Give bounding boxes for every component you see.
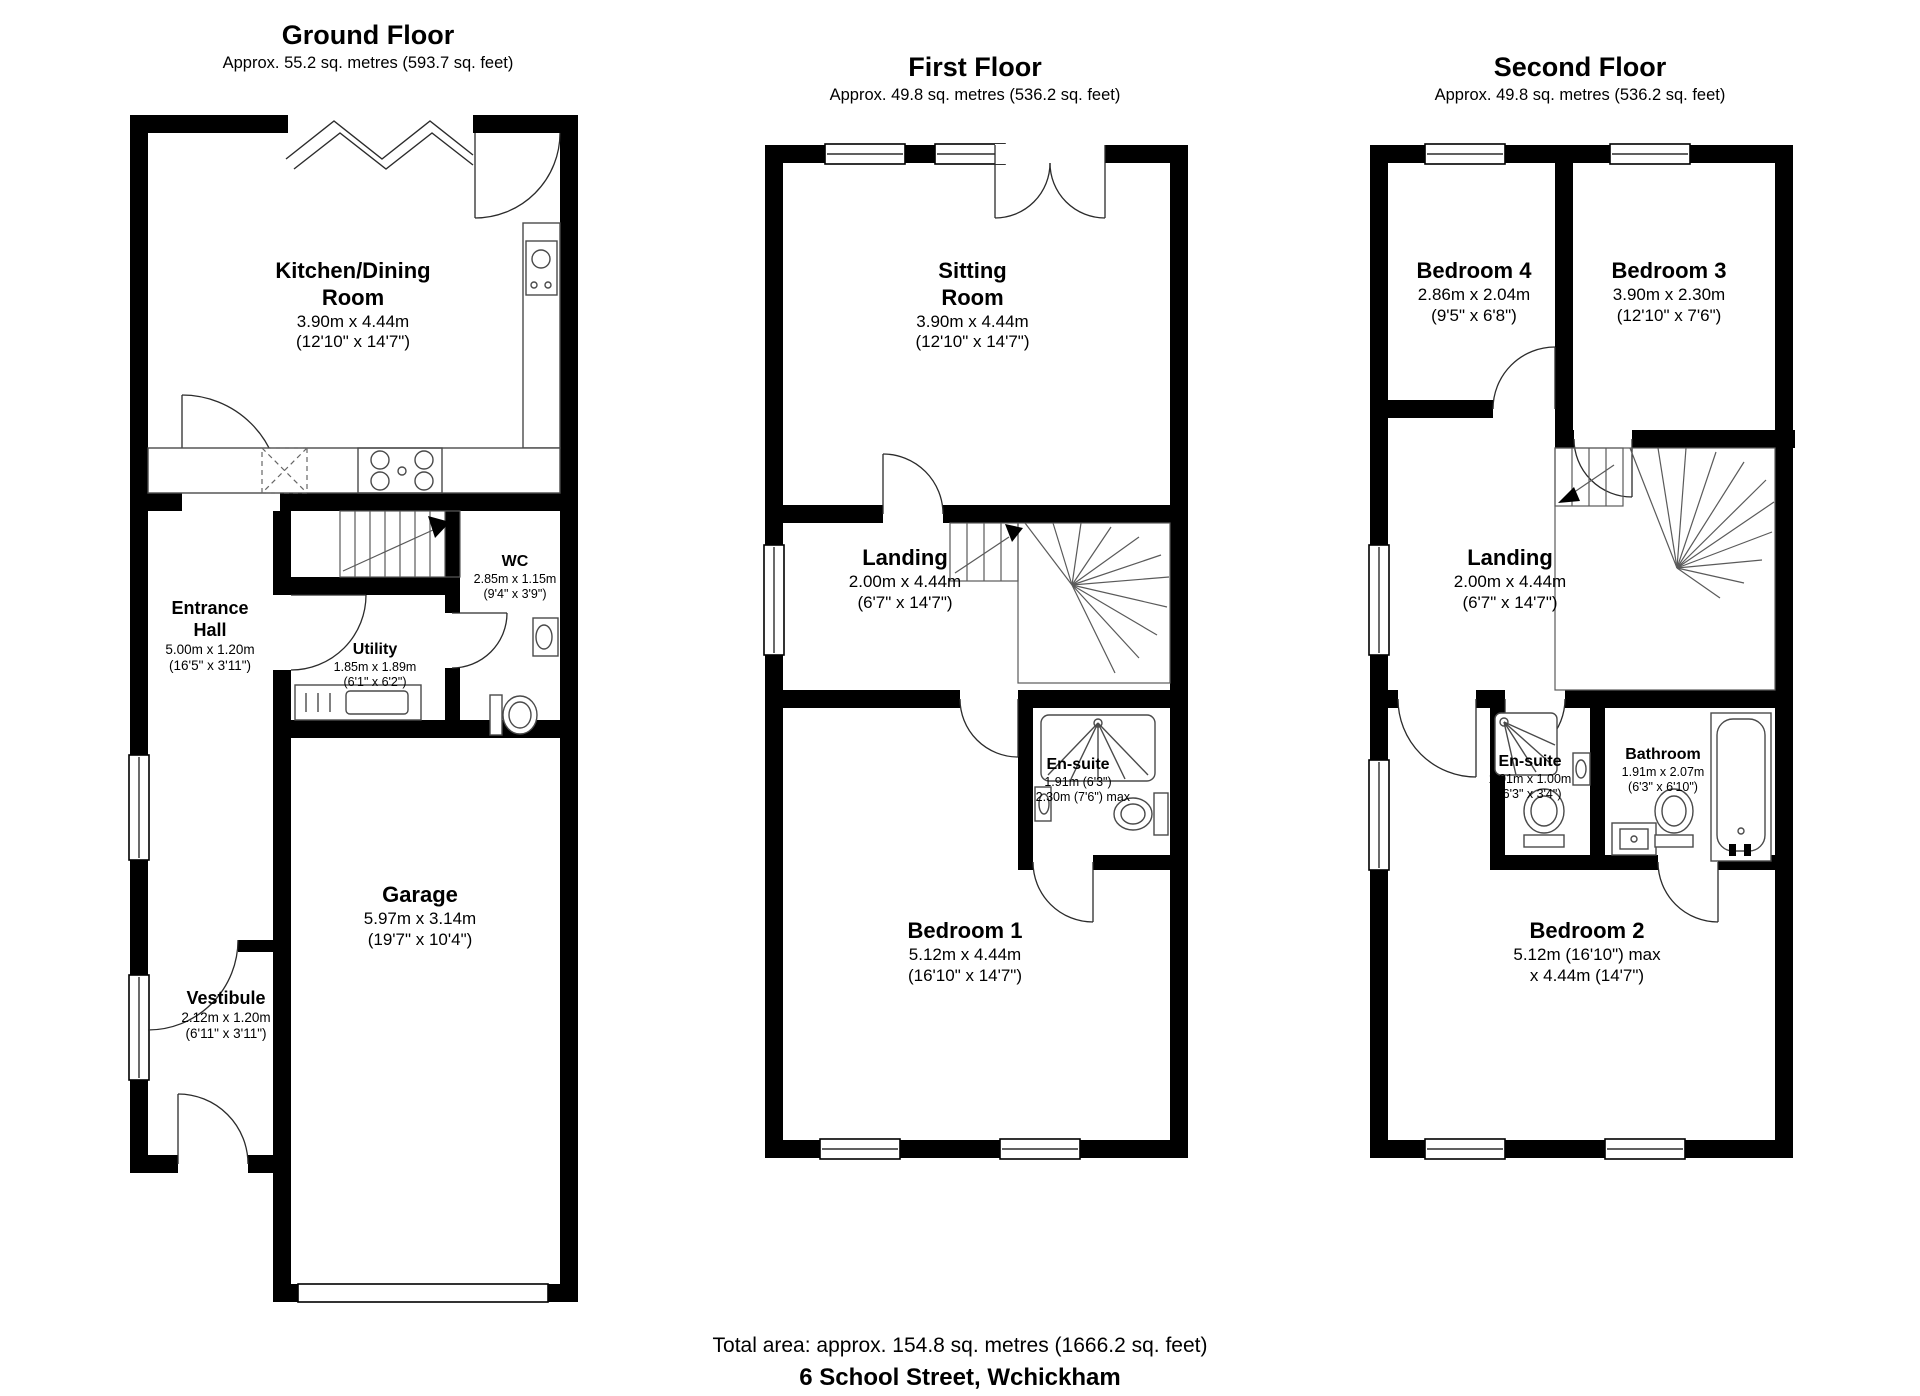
second-floor-header: Second Floor Approx. 49.8 sq. metres (53… <box>1380 52 1780 105</box>
room-name: Bathroom <box>1597 745 1729 765</box>
room-dims-metric: 5.12m (16'10") max <box>1462 945 1712 966</box>
room-name: Garage <box>300 882 540 909</box>
room-dims-metric: 2.85m x 1.15m <box>455 572 575 587</box>
room-label-bedroom-3: Bedroom 3 3.90m x 2.30m (12'10" x 7'6") <box>1580 258 1758 326</box>
room-name: Sitting Room <box>910 258 1035 312</box>
room-name: En-suite <box>1475 752 1585 772</box>
room-dims-imperial: x 4.44m (14'7") <box>1462 966 1712 987</box>
room-dims-metric: 1.91m x 1.00m <box>1475 772 1585 787</box>
room-label-bedroom-1: Bedroom 1 5.12m x 4.44m (16'10" x 14'7") <box>845 918 1085 986</box>
room-name: En-suite <box>1013 755 1143 775</box>
wc-toilet-icon <box>490 695 537 735</box>
room-dims-imperial: (6'7" x 14'7") <box>795 593 1015 614</box>
room-dims-metric: 5.00m x 1.20m <box>162 642 258 658</box>
first-floor-header: First Floor Approx. 49.8 sq. metres (536… <box>775 52 1175 105</box>
room-label-first-ensuite: En-suite 1.91m (6'3") x 2.30m (7'6") max <box>1013 755 1143 805</box>
room-label-first-landing: Landing 2.00m x 4.44m (6'7" x 14'7") <box>795 545 1015 613</box>
bathroom-sink-icon <box>1612 823 1656 855</box>
room-name: Bedroom 3 <box>1580 258 1758 285</box>
room-dims-imperial: (9'4" x 3'9") <box>455 587 575 602</box>
room-label-second-landing: Landing 2.00m x 4.44m (6'7" x 14'7") <box>1400 545 1620 613</box>
room-dims-imperial: (9'5" x 6'8") <box>1385 306 1563 327</box>
room-dims-metric: 5.97m x 3.14m <box>300 909 540 930</box>
room-dims-imperial: (6'3" x 3'4") <box>1475 787 1585 802</box>
first-floor-title: First Floor <box>775 52 1175 83</box>
room-name: Entrance Hall <box>162 598 258 642</box>
room-dims-imperial: (16'10" x 14'7") <box>845 966 1085 987</box>
room-dims-metric: 2.86m x 2.04m <box>1385 285 1563 306</box>
first-floor-area: Approx. 49.8 sq. metres (536.2 sq. feet) <box>775 86 1175 105</box>
bathroom-toilet-icon <box>1655 789 1693 847</box>
first-doors <box>883 454 1093 922</box>
room-label-second-ensuite: En-suite 1.91m x 1.00m (6'3" x 3'4") <box>1475 752 1585 802</box>
room-name: Utility <box>315 640 435 660</box>
wc-basin-icon <box>533 618 558 656</box>
room-name: Kitchen/Dining Room <box>258 258 448 312</box>
room-label-bathroom: Bathroom 1.91m x 2.07m (6'3" x 6'10") <box>1597 745 1729 795</box>
room-label-bedroom-4: Bedroom 4 2.86m x 2.04m (9'5" x 6'8") <box>1385 258 1563 326</box>
total-area-text: Total area: approx. 154.8 sq. metres (16… <box>0 1334 1920 1358</box>
ground-stairs-icon <box>340 511 460 577</box>
kitchen-counter-hob-icon <box>148 448 560 493</box>
room-name: Bedroom 1 <box>845 918 1085 945</box>
room-dims-imperial: (12'10" x 14'7") <box>258 332 448 353</box>
room-label-entrance-hall: Entrance Hall 5.00m x 1.20m (16'5" x 3'1… <box>162 598 258 675</box>
room-dims-metric: 3.90m x 4.44m <box>910 312 1035 333</box>
room-name: Vestibule <box>166 988 286 1010</box>
room-label-wc: WC 2.85m x 1.15m (9'4" x 3'9") <box>455 552 575 602</box>
room-label-bedroom-2: Bedroom 2 5.12m (16'10") max x 4.44m (14… <box>1462 918 1712 986</box>
room-dims-metric: 1.85m x 1.89m <box>315 660 435 675</box>
ground-floor-title: Ground Floor <box>168 20 568 51</box>
room-label-kitchen: Kitchen/Dining Room 3.90m x 4.44m (12'10… <box>258 258 448 353</box>
room-dims-imperial: (19'7" x 10'4") <box>300 930 540 951</box>
utility-sink-icon <box>295 685 421 720</box>
room-dims-metric: 1.91m (6'3") <box>1013 775 1143 790</box>
room-dims-metric: 3.90m x 2.30m <box>1580 285 1758 306</box>
french-doors-icon <box>995 144 1105 218</box>
room-dims-imperial: x 2.30m (7'6") max <box>1013 790 1143 805</box>
kitchen-sink-icon <box>523 223 560 448</box>
ground-floor-header: Ground Floor Approx. 55.2 sq. metres (59… <box>168 20 568 73</box>
total-area-line: Total area: approx. 154.8 sq. metres (16… <box>0 1334 1920 1392</box>
room-name: WC <box>455 552 575 572</box>
room-dims-metric: 2.00m x 4.44m <box>1400 572 1620 593</box>
room-name: Bedroom 4 <box>1385 258 1563 285</box>
roof-zigzag <box>286 121 473 169</box>
property-address: 6 School Street, Wchickham <box>0 1364 1920 1392</box>
room-dims-imperial: (6'11" x 3'11") <box>166 1026 286 1042</box>
room-dims-imperial: (6'7" x 14'7") <box>1400 593 1620 614</box>
second-floor-area: Approx. 49.8 sq. metres (536.2 sq. feet) <box>1380 86 1780 105</box>
room-label-vestibule: Vestibule 2.12m x 1.20m (6'11" x 3'11") <box>166 988 286 1043</box>
ground-floor-area: Approx. 55.2 sq. metres (593.7 sq. feet) <box>168 54 568 73</box>
room-dims-imperial: (12'10" x 7'6") <box>1580 306 1758 327</box>
room-label-utility: Utility 1.85m x 1.89m (6'1" x 6'2") <box>315 640 435 690</box>
room-dims-metric: 3.90m x 4.44m <box>258 312 448 333</box>
room-name: Landing <box>795 545 1015 572</box>
room-dims-imperial: (6'1" x 6'2") <box>315 675 435 690</box>
second-floor-title: Second Floor <box>1380 52 1780 83</box>
floorplan-page: Ground Floor Approx. 55.2 sq. metres (59… <box>0 0 1920 1396</box>
room-dims-metric: 2.00m x 4.44m <box>795 572 1015 593</box>
room-dims-imperial: (16'5" x 3'11") <box>162 658 258 674</box>
room-dims-metric: 2.12m x 1.20m <box>166 1010 286 1026</box>
room-label-sitting-room: Sitting Room 3.90m x 4.44m (12'10" x 14'… <box>910 258 1035 353</box>
room-dims-imperial: (6'3" x 6'10") <box>1597 780 1729 795</box>
room-dims-imperial: (12'10" x 14'7") <box>910 332 1035 353</box>
room-dims-metric: 5.12m x 4.44m <box>845 945 1085 966</box>
room-name: Landing <box>1400 545 1620 572</box>
garage-door-icon <box>298 1284 548 1302</box>
room-dims-metric: 1.91m x 2.07m <box>1597 765 1729 780</box>
room-label-garage: Garage 5.97m x 3.14m (19'7" x 10'4") <box>300 882 540 950</box>
room-name: Bedroom 2 <box>1462 918 1712 945</box>
